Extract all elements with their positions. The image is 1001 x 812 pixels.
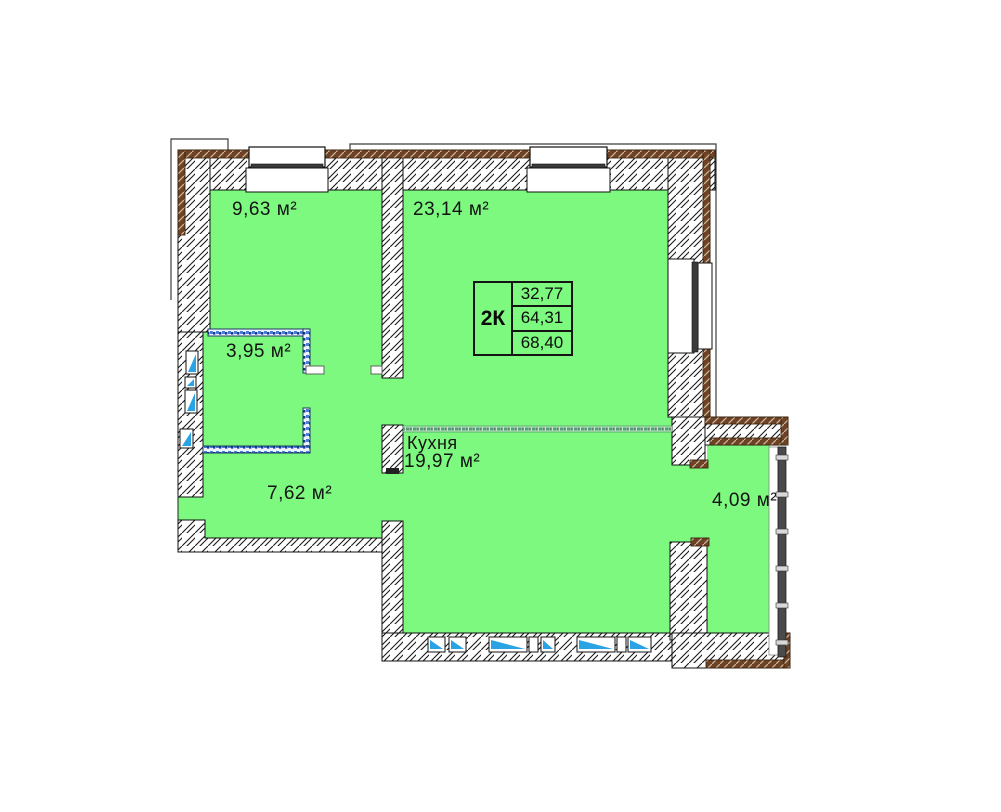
apartment-area: 64,31 [513, 307, 571, 331]
room-label-kitchen: 19,97 м² [404, 451, 480, 473]
floor-plan-drawing [0, 0, 1001, 812]
room-label-bathroom: 3,95 м² [226, 341, 291, 363]
window-top-left-icon [246, 147, 328, 192]
room-label-top-right: 23,14 м² [413, 199, 489, 221]
window-right-wall-icon [668, 259, 712, 353]
apartment-living-area: 32,77 [513, 283, 571, 307]
apartment-info-table: 2К 32,77 64,31 68,40 [473, 281, 573, 356]
room-label-balcony: 4,09 м² [712, 490, 777, 512]
window-top-right-icon [527, 147, 610, 192]
room-label-hallway: 7,62 м² [267, 483, 332, 505]
room-label-top-left: 9,63 м² [232, 199, 297, 221]
balcony-glazing [769, 447, 788, 657]
apartment-areas-column: 32,77 64,31 68,40 [513, 283, 571, 354]
floor-plan: 9,63 м² 23,14 м² 3,95 м² 7,62 м² Кухня 1… [0, 0, 1001, 812]
apartment-total-area: 68,40 [513, 332, 571, 354]
kitchen-zone-separator [403, 426, 672, 432]
apartment-type-label: 2К [475, 283, 513, 354]
